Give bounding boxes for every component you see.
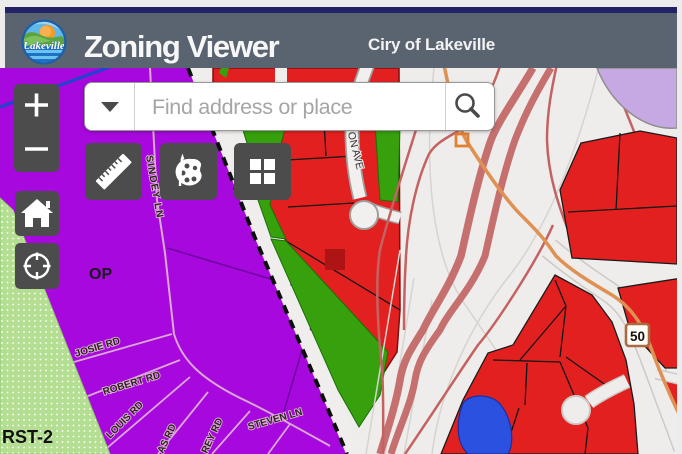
svg-text:Lakeville: Lakeville xyxy=(22,40,65,52)
svg-text:RST-2: RST-2 xyxy=(2,427,53,447)
svg-text:50: 50 xyxy=(630,329,645,344)
svg-text:OP: OP xyxy=(89,266,112,283)
